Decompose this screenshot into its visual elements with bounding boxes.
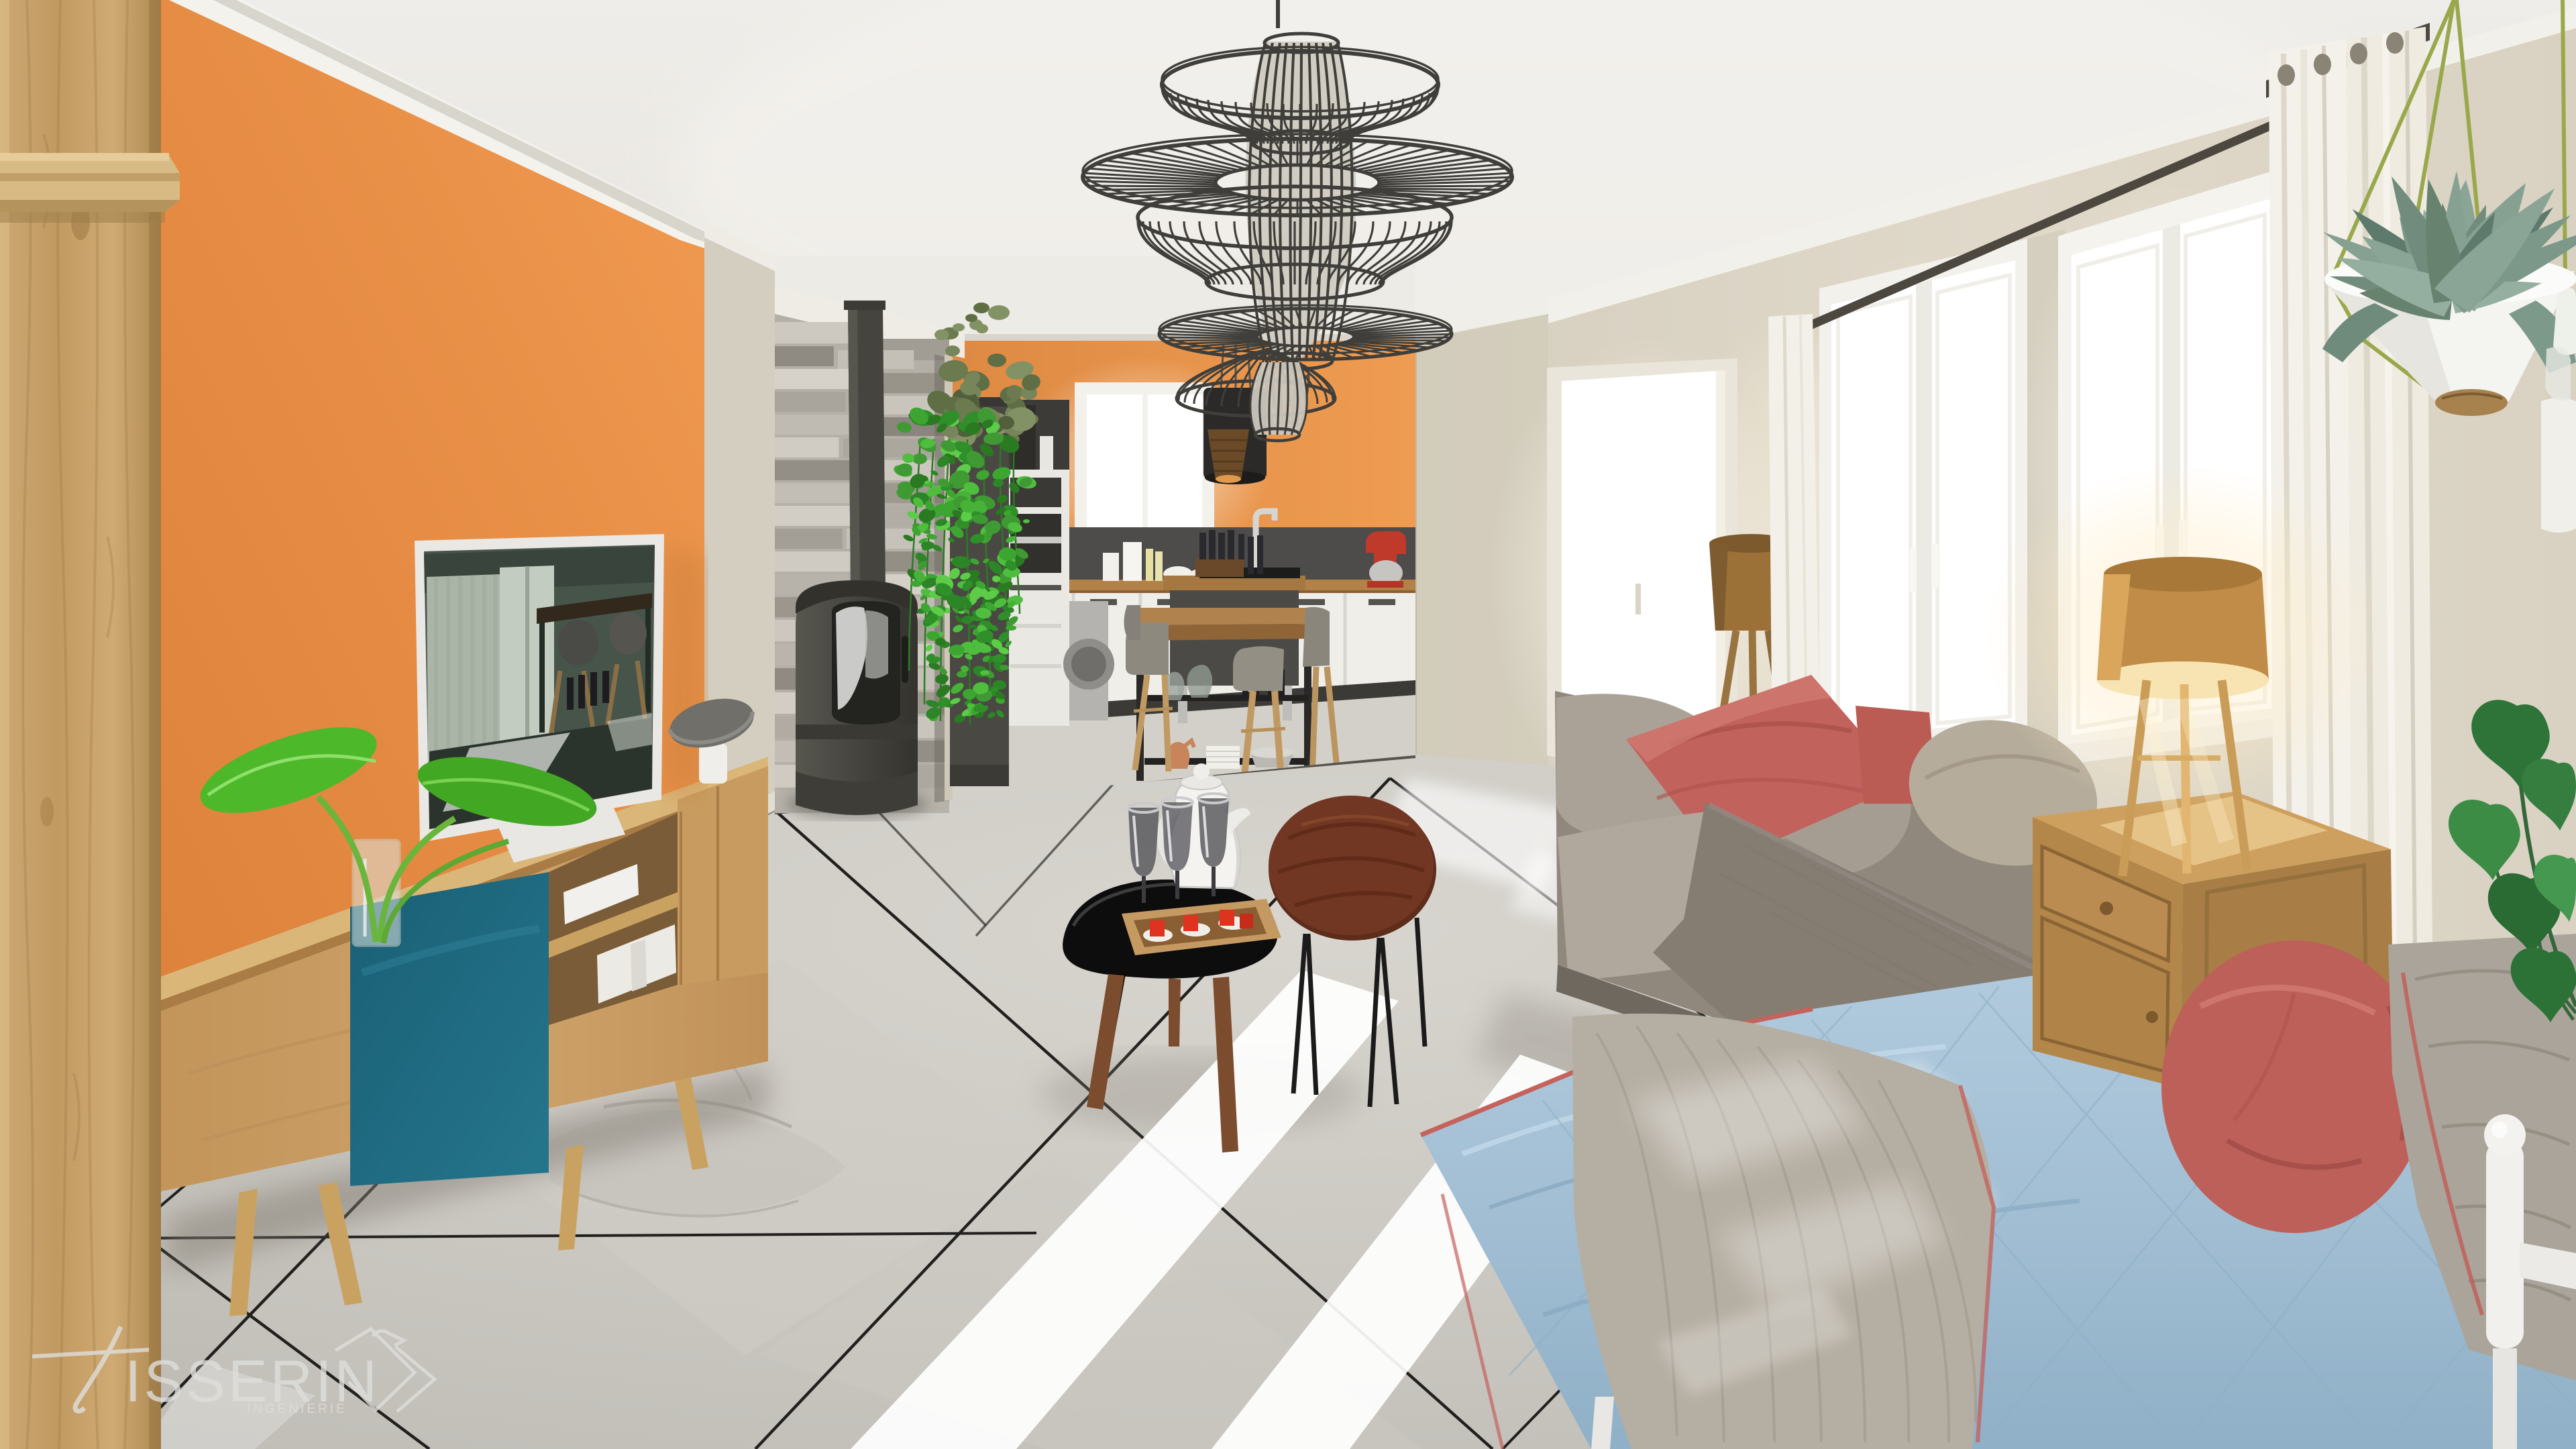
- svg-text:INGENIERIE: INGENIERIE: [247, 1402, 347, 1416]
